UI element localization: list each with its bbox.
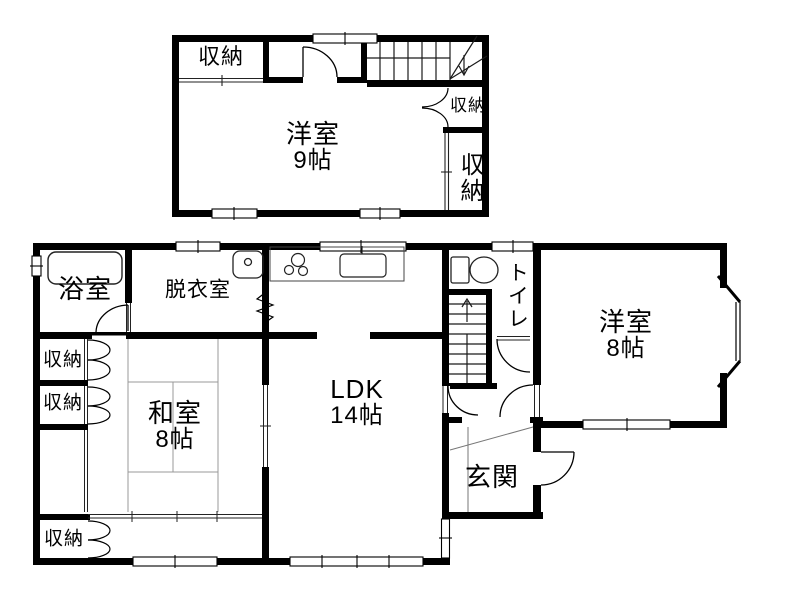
- first-floor-plan: [30, 240, 740, 568]
- door-2f-hall: [303, 47, 337, 77]
- room-size: 8帖: [599, 336, 653, 362]
- room-name: 洋室: [599, 308, 653, 336]
- room-name: 和室: [148, 399, 202, 427]
- room-size: 14帖: [330, 403, 384, 429]
- staircase-2f: [367, 36, 487, 80]
- room-label-storage-veranda: 収納: [44, 530, 84, 551]
- room-label-entrance: 玄関: [465, 463, 519, 491]
- room-name: LDK: [330, 375, 384, 403]
- room-size: 9帖: [286, 148, 340, 174]
- kitchen-counter: [270, 247, 404, 281]
- room-label-2f-storage-middle: 収納: [450, 97, 486, 115]
- room-label-ldk: LDK 14帖: [330, 375, 384, 429]
- room-name: 洋室: [286, 120, 340, 148]
- bifold-doors: [88, 340, 110, 558]
- room-label-dressing-room: 脱衣室: [165, 280, 231, 303]
- room-label-2f-storage-top-left: 収納: [198, 45, 244, 69]
- room-label-western-room-1f: 洋室 8帖: [599, 308, 653, 362]
- room-label-storage-lower: 収納: [43, 394, 83, 415]
- room-label-2f-western-room: 洋室 9帖: [286, 120, 340, 174]
- staircase-1f: [449, 299, 486, 383]
- washbasin-icon: [233, 251, 263, 278]
- floorplan-page: 収納 洋室 9帖 収納 収納 浴室 脱衣室 収納 収納 和室 8帖 LDK 14…: [0, 0, 800, 600]
- toilet-icon: [451, 257, 498, 283]
- room-label-bathroom: 浴室: [58, 275, 112, 303]
- floorplan-drawing: [0, 0, 800, 600]
- room-label-storage-upper: 収納: [43, 351, 83, 372]
- double-door-2f-storage: [422, 88, 448, 127]
- stove-icon: [285, 254, 308, 276]
- room-size: 8帖: [148, 427, 202, 453]
- room-label-toilet: トイレ: [505, 262, 528, 331]
- room-label-2f-storage-bottom-right: 収納: [456, 152, 482, 204]
- room-label-japanese-room: 和室 8帖: [148, 399, 202, 453]
